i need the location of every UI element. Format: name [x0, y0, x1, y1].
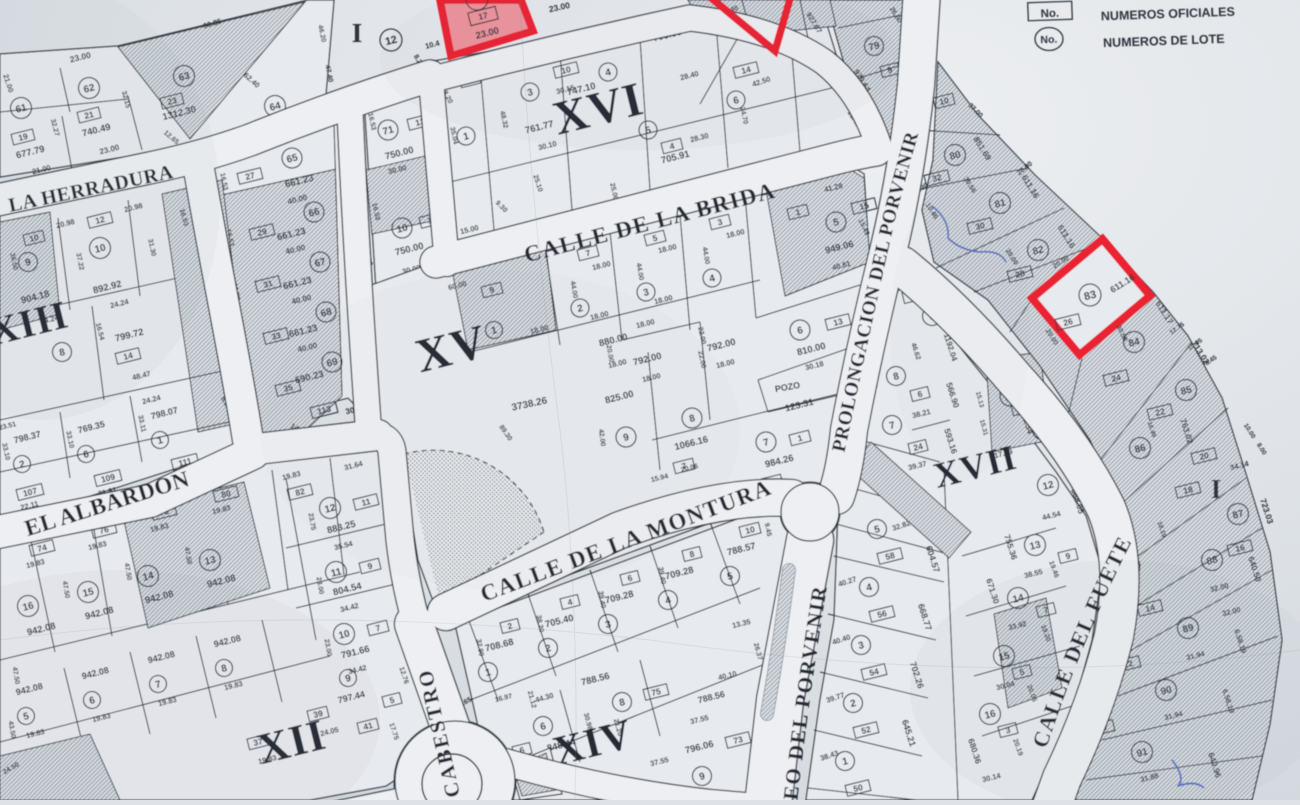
svg-text:No.: No. — [1040, 8, 1059, 21]
svg-text:I: I — [1211, 474, 1222, 504]
svg-text:No.: No. — [1040, 34, 1057, 47]
svg-text:I: I — [352, 18, 363, 48]
